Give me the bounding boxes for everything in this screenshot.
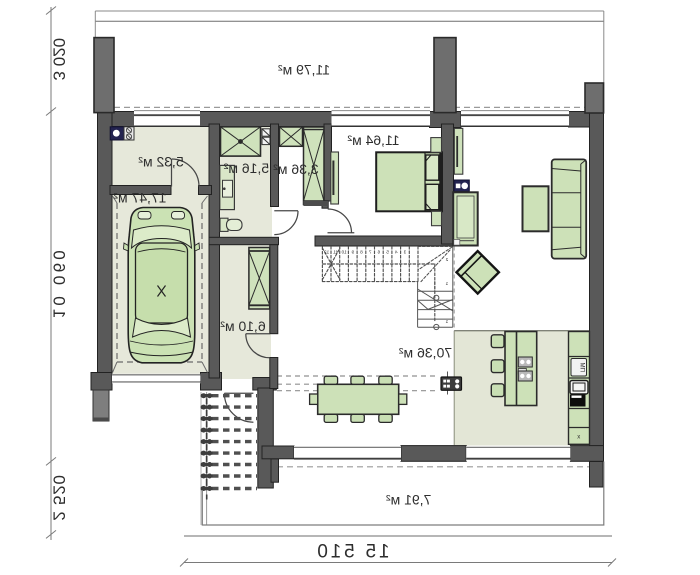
svg-text:3,36 м²: 3,36 м² <box>273 161 319 177</box>
svg-text:5,32 м²: 5,32 м² <box>138 153 184 169</box>
svg-text:8: 8 <box>360 250 363 255</box>
svg-text:7,91 м²: 7,91 м² <box>386 491 432 507</box>
svg-text:3: 3 <box>403 250 406 255</box>
svg-text:15 510: 15 510 <box>315 542 390 563</box>
svg-text:11,64 м²: 11,64 м² <box>347 132 400 148</box>
svg-text:3 020: 3 020 <box>50 38 69 81</box>
svg-text:2: 2 <box>445 257 448 262</box>
svg-text:1: 1 <box>445 319 448 324</box>
svg-text:5: 5 <box>386 250 389 255</box>
svg-text:1: 1 <box>445 281 448 286</box>
svg-text:х: х <box>577 435 580 441</box>
svg-text:12: 12 <box>324 250 330 255</box>
svg-text:6,10 м²: 6,10 м² <box>220 318 266 334</box>
svg-text:7: 7 <box>368 250 371 255</box>
svg-text:10: 10 <box>341 250 347 255</box>
svg-text:6: 6 <box>377 250 380 255</box>
svg-text:70,36 м²: 70,36 м² <box>399 344 453 360</box>
svg-text:11: 11 <box>333 250 338 255</box>
svg-text:11,79 м²: 11,79 м² <box>278 62 331 78</box>
svg-text:4: 4 <box>395 250 398 255</box>
svg-text:17,47 м²: 17,47 м² <box>113 190 167 206</box>
svg-text:5,16 м²: 5,16 м² <box>223 160 269 176</box>
svg-text:10 060: 10 060 <box>50 247 69 318</box>
svg-text:2 520: 2 520 <box>50 474 69 521</box>
svg-text:9: 9 <box>351 250 354 255</box>
svg-text:ПМ: ПМ <box>579 363 585 372</box>
